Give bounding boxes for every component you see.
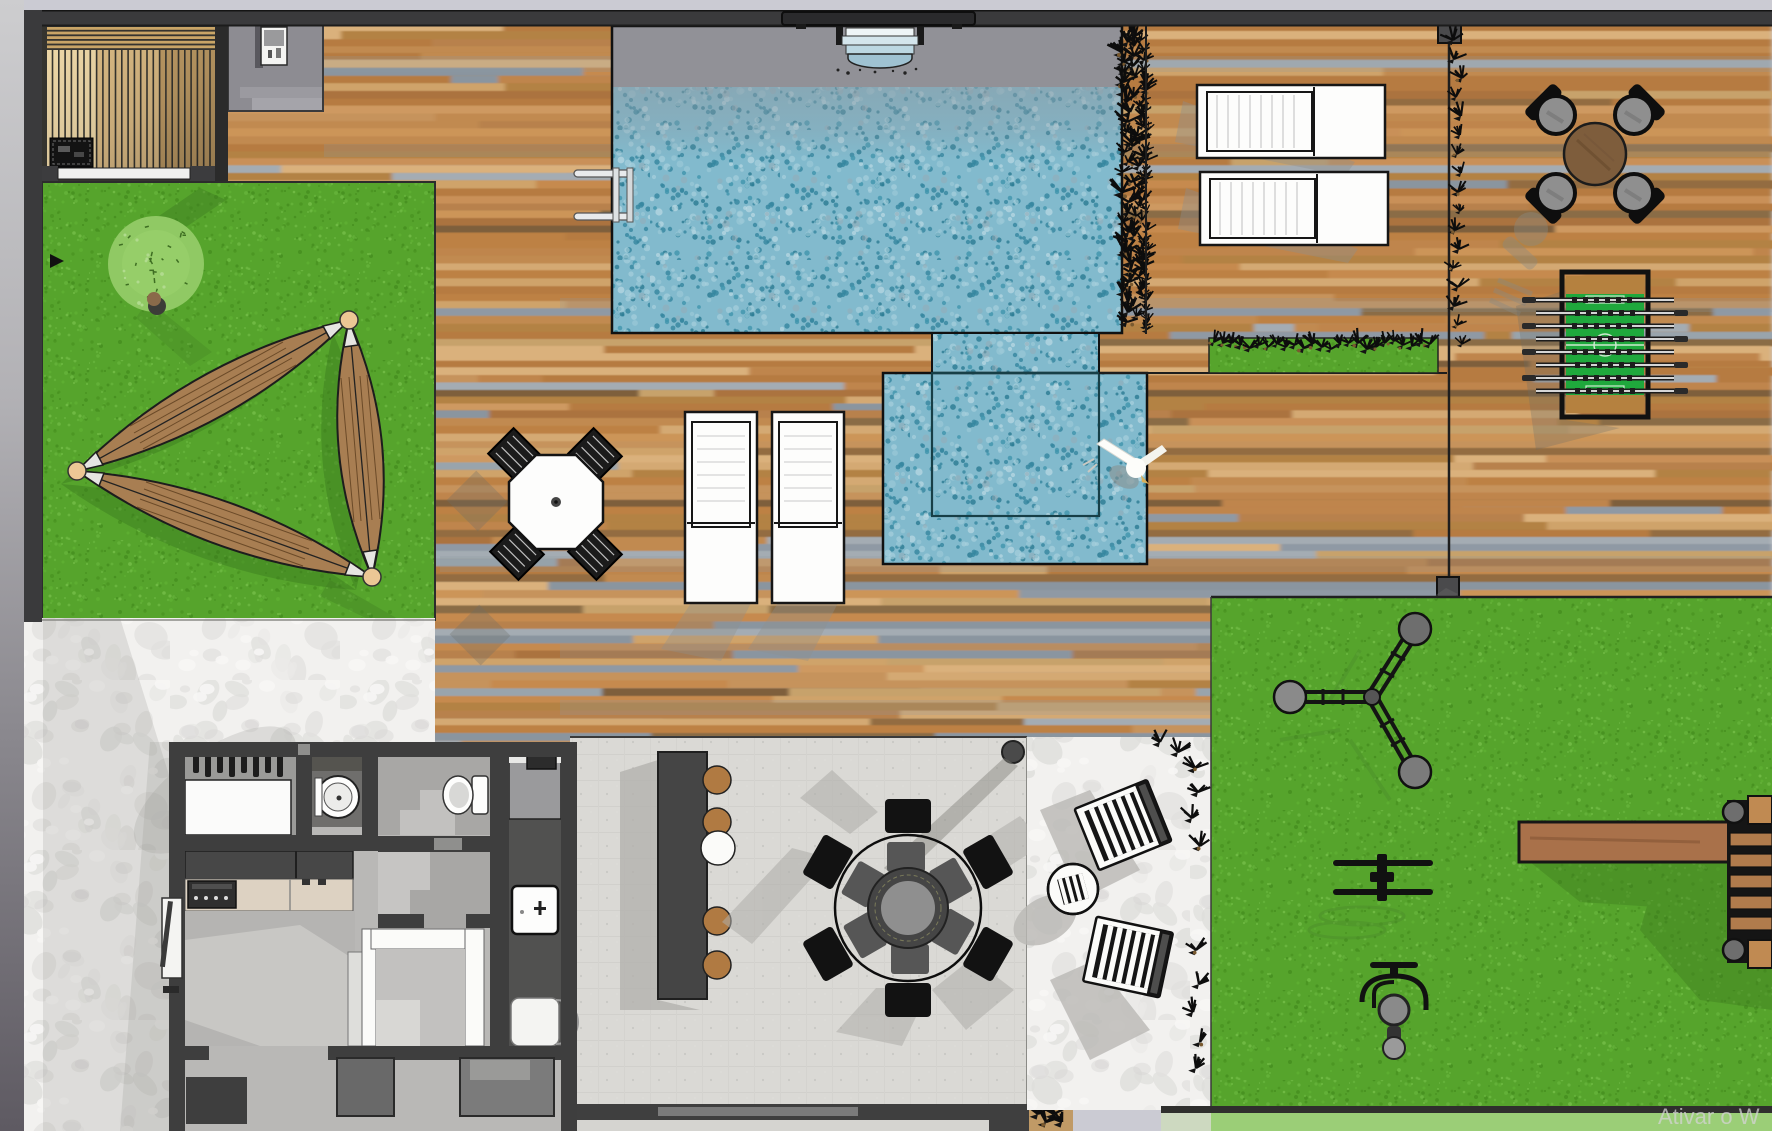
svg-text:Ativar o W: Ativar o W xyxy=(1658,1104,1760,1129)
